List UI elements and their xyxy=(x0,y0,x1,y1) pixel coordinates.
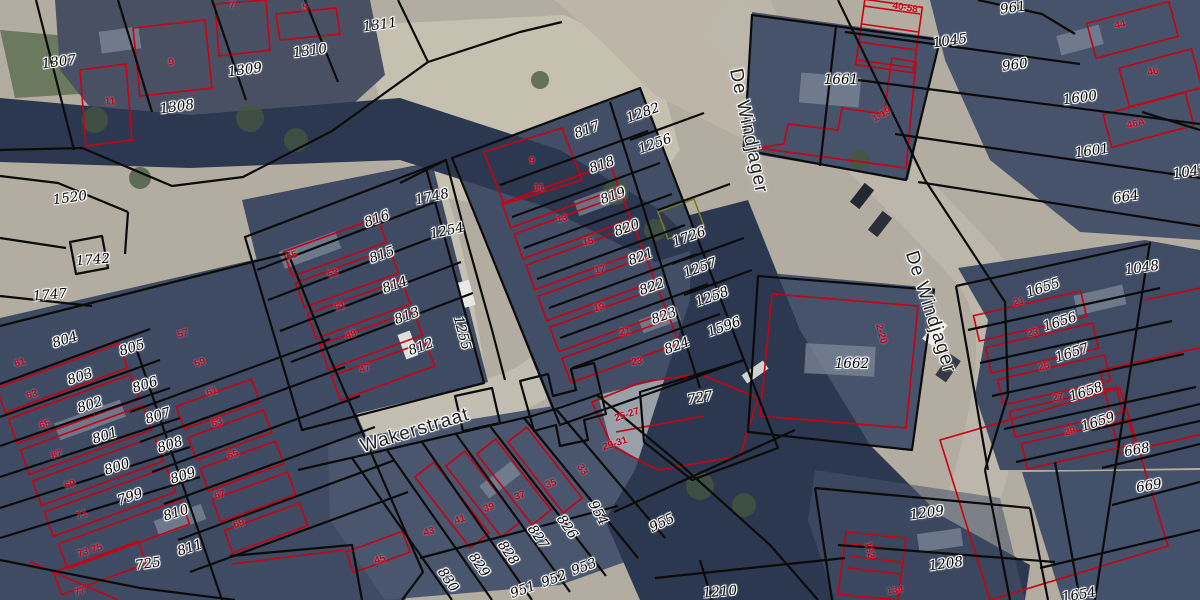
map-canvas[interactable]: 1307130913101311130815201742174717488161… xyxy=(0,0,1200,600)
aerial-basemap xyxy=(0,0,1200,600)
